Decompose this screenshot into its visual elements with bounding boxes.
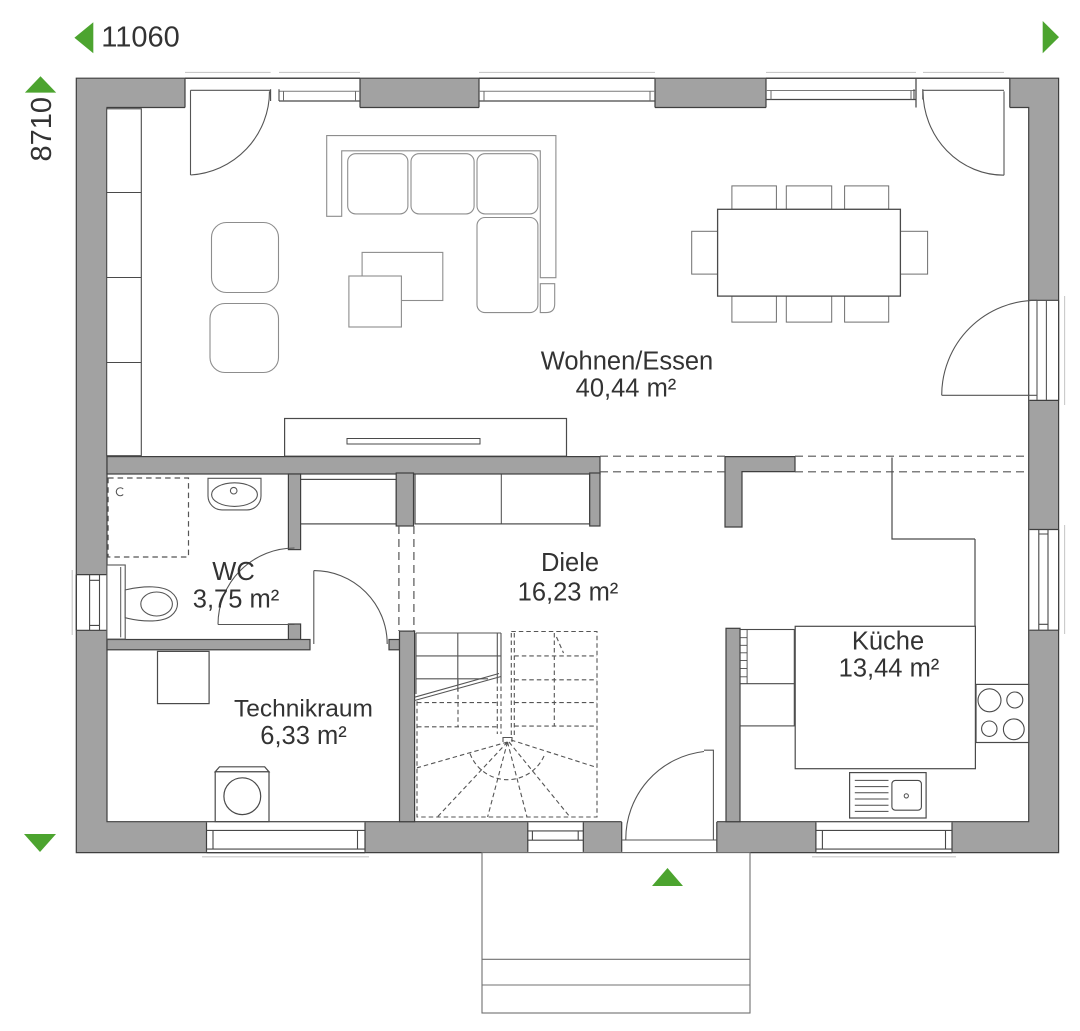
svg-text:6,33 m²: 6,33 m² (260, 722, 346, 750)
svg-text:8710: 8710 (26, 97, 58, 162)
svg-text:Diele: Diele (541, 549, 599, 577)
svg-text:Wohnen/Essen: Wohnen/Essen (541, 348, 713, 376)
svg-text:Küche: Küche (852, 628, 924, 656)
svg-text:40,44 m²: 40,44 m² (576, 375, 677, 403)
svg-text:16,23 m²: 16,23 m² (518, 579, 619, 607)
svg-text:3,75 m²: 3,75 m² (193, 586, 279, 614)
svg-text:11060: 11060 (101, 22, 180, 54)
svg-text:WC: WC (212, 558, 254, 586)
svg-text:13,44 m²: 13,44 m² (839, 655, 940, 683)
svg-text:Technikraum: Technikraum (234, 696, 373, 723)
